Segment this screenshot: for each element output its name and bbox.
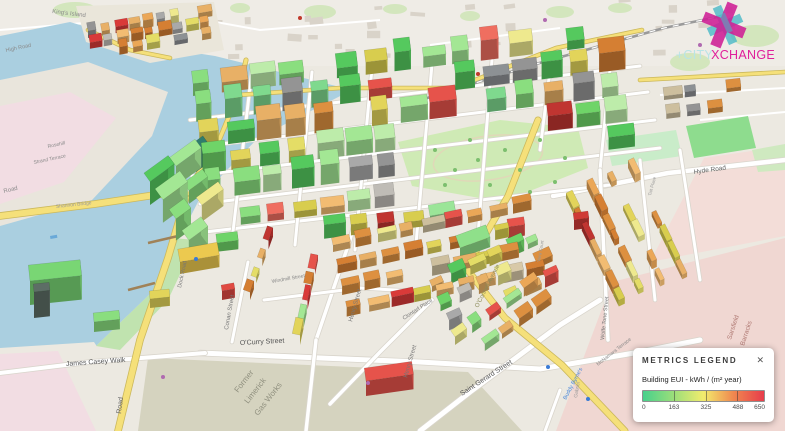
building[interactable] — [428, 85, 457, 120]
building[interactable] — [479, 25, 498, 61]
building[interactable] — [400, 94, 428, 123]
building[interactable] — [319, 149, 339, 186]
building[interactable] — [255, 103, 281, 140]
building[interactable] — [707, 99, 723, 114]
building[interactable] — [223, 83, 242, 118]
building[interactable] — [146, 33, 161, 50]
cityxchange-pinwheel-icon — [695, 1, 755, 51]
building[interactable] — [93, 310, 120, 332]
building[interactable] — [607, 123, 635, 150]
logo-prefix-text: +CITY — [676, 48, 713, 62]
building[interactable] — [354, 227, 371, 247]
building[interactable] — [293, 200, 317, 219]
poi-marker — [546, 365, 550, 369]
building[interactable] — [216, 231, 239, 251]
building[interactable] — [393, 37, 411, 71]
building[interactable] — [132, 40, 143, 53]
legend-metric-label: Building EUI - kWh / (m² year) — [642, 375, 765, 384]
metrics-legend-panel: METRICS LEGEND ✕ Building EUI - kWh / (m… — [633, 348, 774, 422]
building[interactable] — [347, 188, 371, 211]
building[interactable] — [597, 36, 625, 73]
poi-marker — [194, 257, 198, 261]
building[interactable] — [262, 164, 281, 192]
building[interactable] — [118, 38, 128, 55]
cityxchange-logo: +CITYXCHANGE — [687, 0, 779, 66]
building[interactable] — [377, 152, 395, 178]
building[interactable] — [284, 103, 306, 137]
building[interactable] — [249, 61, 276, 89]
poi-marker — [298, 16, 302, 20]
building[interactable] — [686, 103, 700, 116]
poi-marker — [476, 72, 480, 76]
building[interactable] — [684, 84, 696, 97]
building[interactable] — [663, 85, 683, 100]
building[interactable] — [89, 33, 103, 49]
building[interactable] — [454, 60, 475, 90]
building[interactable] — [450, 35, 468, 64]
building[interactable] — [514, 79, 533, 109]
building[interactable] — [373, 182, 394, 208]
building[interactable] — [544, 80, 564, 105]
poi-marker — [366, 381, 370, 385]
legend-tick: 0 — [642, 404, 646, 411]
legend-separator — [737, 391, 738, 401]
cityxchange-wordmark: +CITYXCHANGE — [676, 48, 775, 62]
building[interactable] — [157, 20, 172, 37]
building[interactable] — [494, 222, 509, 240]
building[interactable] — [240, 205, 261, 224]
legend-tick: 163 — [669, 404, 680, 411]
building[interactable] — [486, 87, 506, 113]
building[interactable] — [511, 57, 537, 83]
building[interactable] — [665, 103, 680, 119]
building[interactable] — [508, 28, 533, 57]
building[interactable] — [323, 213, 346, 238]
legend-title: METRICS LEGEND — [642, 356, 737, 365]
building[interactable] — [364, 48, 387, 75]
poi-marker — [586, 397, 590, 401]
legend-tick: 650 — [754, 404, 765, 411]
building[interactable] — [726, 78, 742, 92]
building[interactable] — [339, 73, 361, 104]
legend-tick: 325 — [701, 404, 712, 411]
close-icon[interactable]: ✕ — [755, 356, 765, 365]
building[interactable] — [259, 141, 280, 167]
legend-ticks: 0163325488650 — [642, 404, 765, 412]
building[interactable] — [483, 64, 510, 87]
building[interactable] — [540, 50, 562, 80]
building[interactable] — [422, 45, 446, 68]
building[interactable] — [233, 165, 261, 195]
legend-tick: 488 — [733, 404, 744, 411]
building[interactable] — [33, 282, 50, 318]
building[interactable] — [185, 17, 199, 32]
building[interactable] — [195, 89, 212, 122]
building[interactable] — [348, 155, 372, 182]
building[interactable] — [313, 101, 333, 133]
building[interactable] — [103, 33, 113, 46]
building[interactable] — [142, 12, 153, 28]
building[interactable] — [130, 27, 143, 42]
building[interactable] — [546, 101, 572, 131]
building[interactable] — [345, 125, 373, 156]
building[interactable] — [604, 94, 628, 124]
building[interactable] — [266, 202, 284, 222]
building[interactable] — [566, 26, 585, 50]
building[interactable] — [399, 221, 413, 238]
building[interactable] — [575, 101, 600, 128]
legend-gradient-bar — [642, 390, 765, 402]
building[interactable] — [291, 154, 315, 188]
poi-marker — [161, 375, 165, 379]
logo-suffix-text: XCHANGE — [711, 48, 775, 62]
building[interactable] — [149, 289, 170, 308]
building[interactable] — [601, 72, 619, 98]
building[interactable] — [227, 119, 255, 144]
building[interactable] — [201, 26, 211, 40]
legend-separator — [706, 391, 707, 401]
building[interactable] — [572, 71, 594, 102]
building[interactable] — [374, 123, 396, 152]
building[interactable] — [171, 22, 182, 35]
map-viewport[interactable]: King's IslandHigh RoadRosehillStrand Ter… — [0, 0, 785, 431]
building[interactable] — [363, 270, 380, 291]
legend-separator — [674, 391, 675, 401]
poi-marker — [543, 18, 547, 22]
building[interactable] — [370, 95, 387, 127]
building[interactable] — [320, 195, 345, 215]
